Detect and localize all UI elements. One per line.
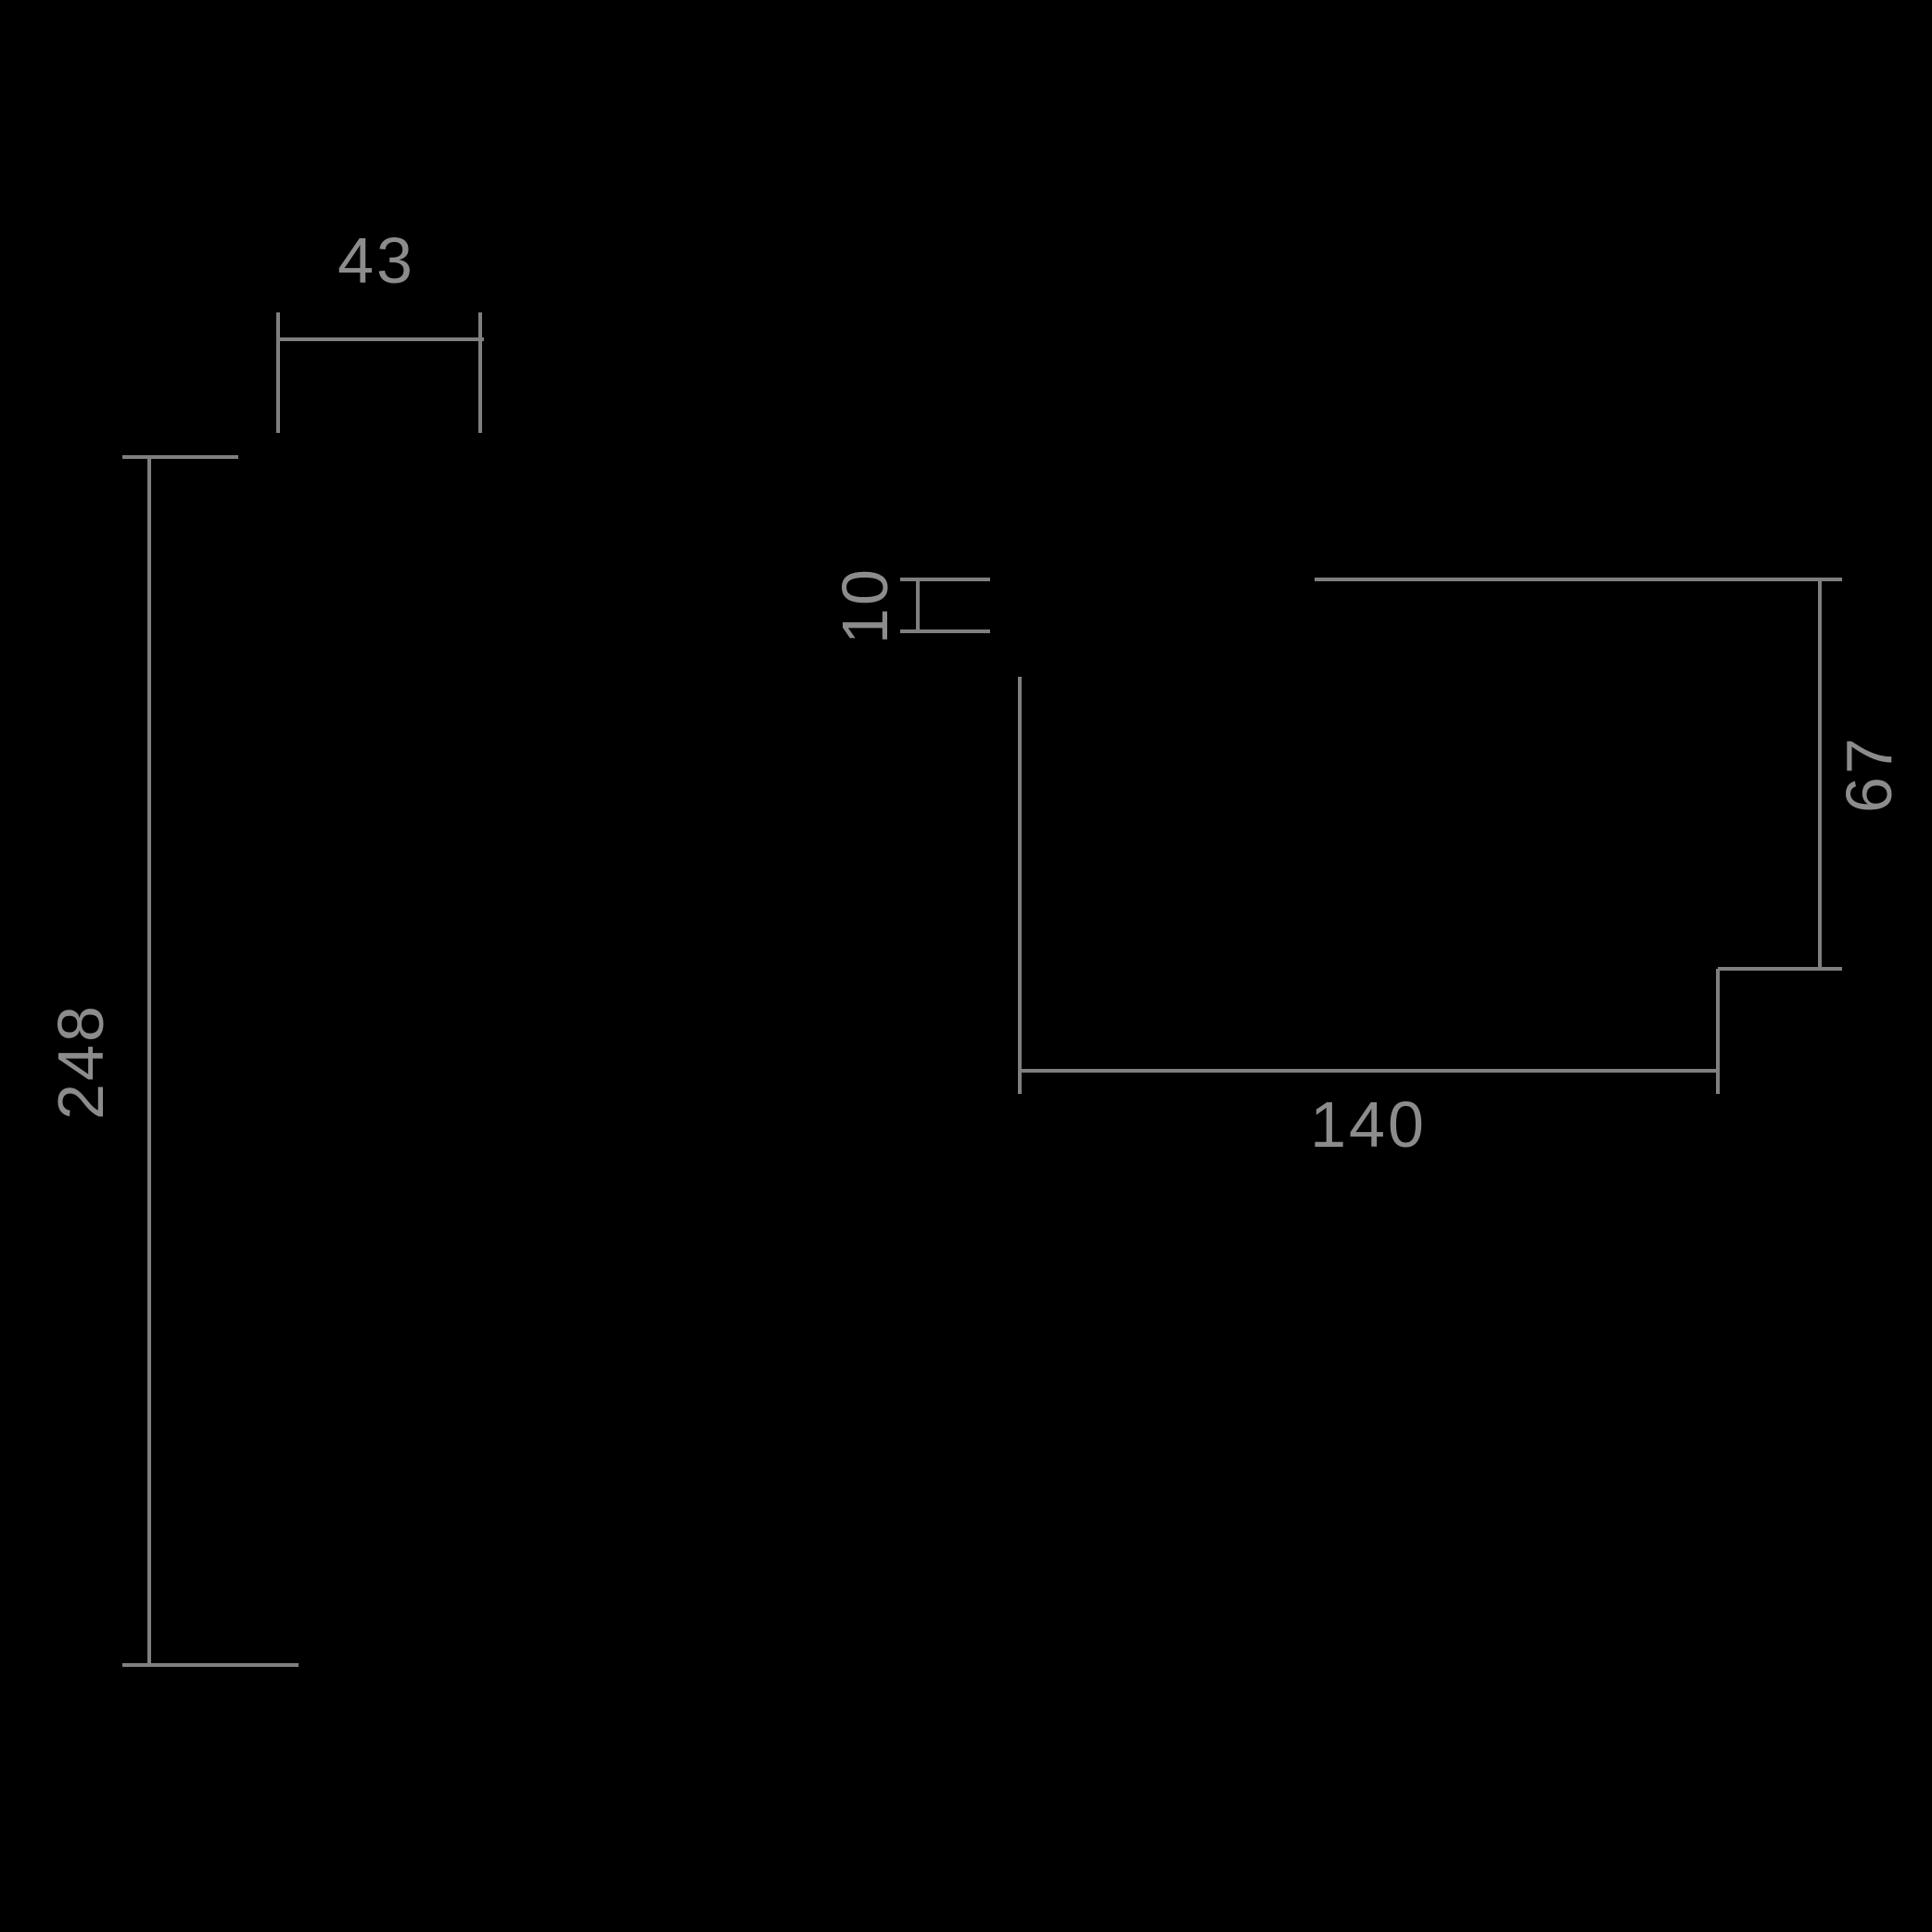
dim-10-line [916,578,920,633]
dim-43-tick-right [478,312,482,433]
dim-67-line [1818,578,1822,971]
dim-248-line [147,457,151,1665]
dim-67-tick-bottom [1718,967,1842,971]
dim-248-tick-bottom [122,1663,299,1667]
dim-140-ext-left [1018,677,1022,1094]
dim-10-label: 10 [833,566,897,644]
dim-10-ext-top [900,578,990,581]
dim-140-ext-right [1716,969,1720,1094]
dim-140-line [1018,1069,1720,1073]
dim-43-line [276,337,484,341]
head-top-line [1315,578,1842,581]
dim-248-label: 248 [48,1003,113,1120]
dim-140-label: 140 [1310,1092,1427,1157]
dim-43-label: 43 [337,228,415,293]
dim-10-ext-bottom [900,629,990,633]
dim-248-tick-top [122,455,238,459]
dim-43-tick-left [276,312,280,433]
dimension-drawing-canvas: 43 248 10 67 140 [0,0,1932,1932]
dim-67-label: 67 [1837,735,1901,813]
